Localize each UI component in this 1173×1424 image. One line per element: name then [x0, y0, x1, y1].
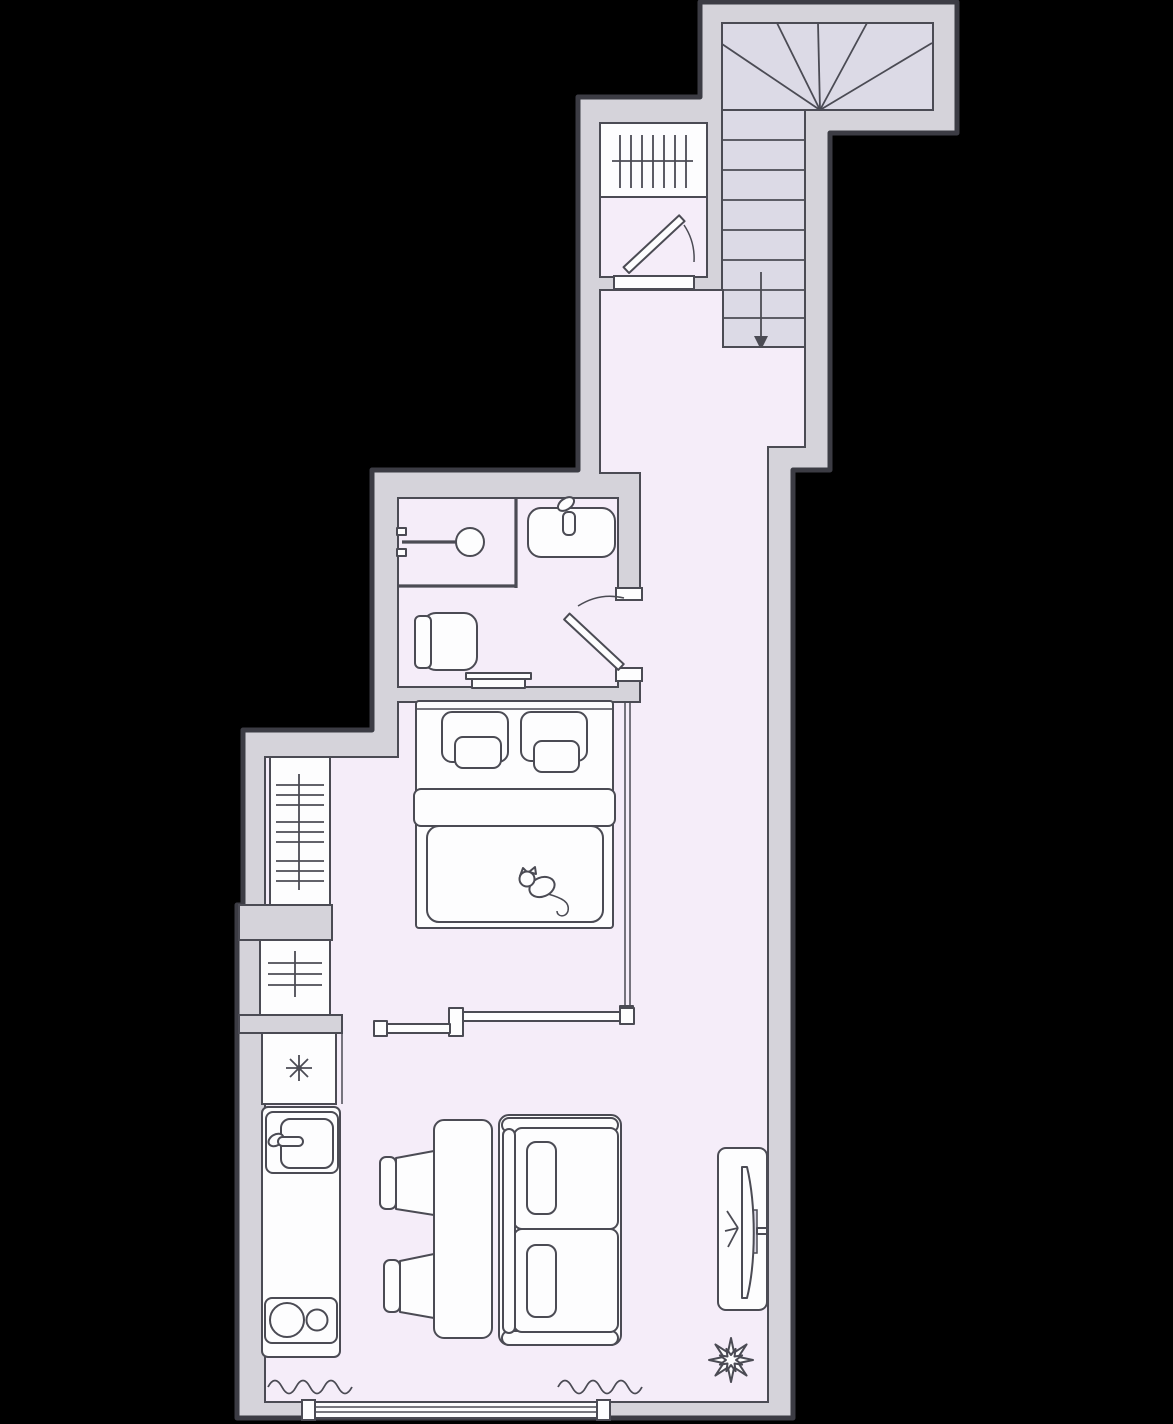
toilet-cistern	[415, 616, 431, 668]
vestibule-threshold	[614, 276, 694, 289]
chair-1-back	[380, 1157, 396, 1209]
kitchen-sink	[266, 1112, 338, 1173]
wall-stub-2	[239, 1015, 342, 1033]
sofa	[499, 1115, 621, 1345]
sliding-rail-junction	[449, 1008, 463, 1036]
double-bed	[414, 701, 615, 928]
tv-wall-stem	[757, 1228, 767, 1234]
bathroom-door-jamb-bottom	[616, 668, 642, 681]
sofa-pillow-2	[527, 1245, 556, 1317]
window-post-right	[597, 1400, 610, 1420]
stair-flight	[722, 110, 805, 347]
shower-valve-2	[397, 549, 406, 556]
shower-head	[456, 528, 484, 556]
floorplan-svg	[0, 0, 1173, 1424]
bath-bench	[466, 673, 531, 688]
plant	[709, 1338, 753, 1382]
chair-1-seat	[396, 1151, 434, 1215]
washbasin-tap	[563, 512, 575, 535]
sliding-rail-cap-right	[620, 1008, 634, 1024]
sink-tap	[278, 1137, 303, 1146]
bed-duvet	[427, 826, 603, 922]
chair-2	[384, 1254, 434, 1318]
pillow-right-small	[534, 741, 579, 772]
pillow-left-small	[455, 737, 501, 768]
sofa-armrest-bottom	[502, 1331, 618, 1345]
chair-2-seat	[400, 1254, 434, 1318]
sofa-pillow-1	[527, 1142, 556, 1214]
floorplan-canvas	[0, 0, 1173, 1424]
sliding-panel-door	[380, 1024, 450, 1033]
dining-table	[434, 1120, 492, 1338]
burner-large	[270, 1303, 304, 1337]
chair-2-back	[384, 1260, 400, 1312]
sofa-backrest	[503, 1129, 515, 1333]
bed-blanket-band	[414, 789, 615, 826]
entry-vestibule	[600, 123, 707, 289]
cooktop	[265, 1298, 337, 1343]
shower-valve-1	[397, 528, 406, 535]
window-post-left	[302, 1400, 315, 1420]
fridge-snowflake-center	[296, 1065, 302, 1071]
kitchen	[262, 1033, 342, 1357]
bathroom-door-jamb-top	[616, 588, 642, 600]
panoramic-window	[302, 1400, 610, 1420]
sliding-rail-cap-left	[374, 1021, 387, 1036]
bathroom	[397, 494, 642, 688]
toilet	[415, 613, 477, 670]
tv-stand	[718, 1148, 767, 1310]
chair-1	[380, 1151, 434, 1215]
wall-stub-1	[239, 905, 332, 940]
burner-small	[307, 1310, 328, 1331]
sliding-panel-fixed	[455, 1012, 623, 1021]
window-glazing	[306, 1402, 610, 1418]
cat-head	[520, 872, 535, 887]
